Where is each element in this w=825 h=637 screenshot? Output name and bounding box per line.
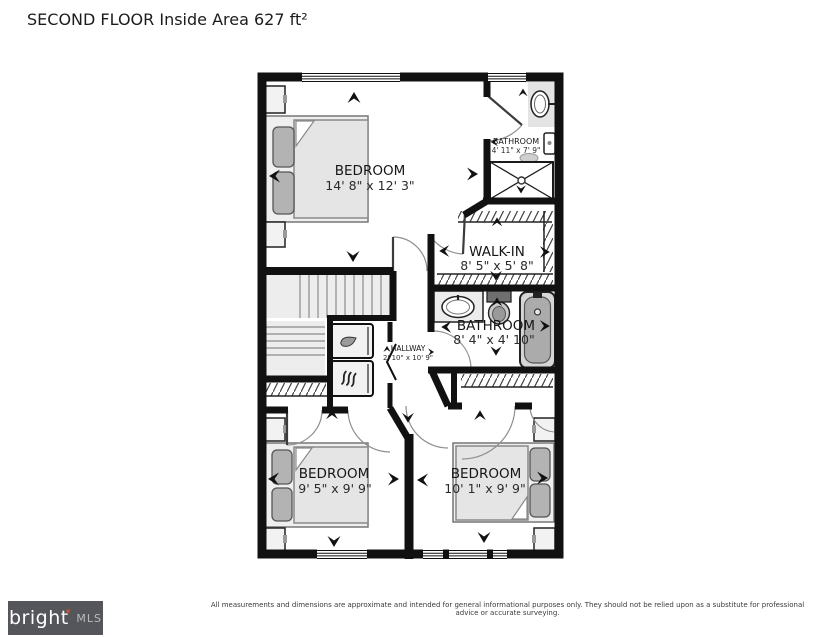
- shower-icon: [490, 162, 553, 199]
- window: [488, 73, 526, 82]
- window: [302, 73, 400, 82]
- washer-icon: [331, 324, 373, 358]
- room-label: BATHROOM: [493, 137, 539, 146]
- logo-brand: bright: [9, 607, 69, 629]
- room-label: BEDROOM: [335, 163, 405, 179]
- room-label: BEDROOM: [299, 466, 369, 482]
- disclaimer-text: All measurements and dimensions are appr…: [205, 601, 810, 617]
- window: [423, 550, 507, 559]
- room-dimensions: 8' 5" x 5' 8": [460, 258, 533, 273]
- floor-plan-page: SECOND FLOOR Inside Area 627 ft²: [0, 0, 825, 637]
- floor-plan: BEDROOM 14' 8" x 12' 3" BATHROOM 4' 11" …: [0, 0, 825, 637]
- logo-suffix: MLS: [76, 612, 102, 625]
- right-closet-rod: [461, 374, 553, 387]
- room-label: BEDROOM: [451, 466, 521, 482]
- room-dimensions: 8' 4" x 4' 10": [453, 332, 534, 347]
- brightmls-logo: bright✶MLS: [8, 601, 103, 635]
- room-dimensions: 14' 8" x 12' 3": [325, 178, 414, 193]
- room-label: HALLWAY: [391, 344, 426, 353]
- dryer-icon: [331, 361, 373, 396]
- room-dimensions: 10' 1" x 9' 9": [444, 481, 525, 496]
- window: [317, 550, 367, 559]
- left-closet-rod: [264, 383, 327, 396]
- room-dimensions: 2' 10" x 10' 9": [383, 354, 433, 362]
- logo-star-icon: ✶: [65, 607, 72, 616]
- page-title: SECOND FLOOR Inside Area 627 ft²: [27, 10, 308, 29]
- room-dimensions: 4' 11" x 7' 9": [492, 146, 541, 155]
- toilet-icon: [528, 82, 556, 127]
- room-dimensions: 9' 5" x 9' 9": [298, 481, 371, 496]
